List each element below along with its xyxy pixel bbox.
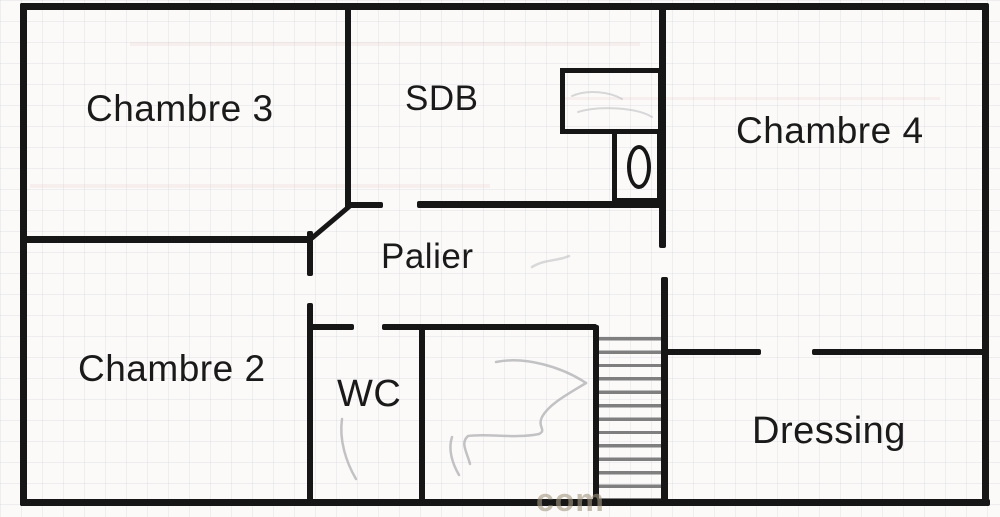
- wall-exterior-bottom: [20, 499, 990, 506]
- wall-wc-right: [419, 327, 425, 506]
- bathroom-counter: [560, 68, 663, 134]
- wall-wc-top-right: [382, 324, 597, 330]
- room-label-palier: Palier: [381, 239, 473, 274]
- room-label-sdb: SDB: [405, 81, 478, 116]
- wall-sdb-bottom-stub: [345, 202, 383, 208]
- watermark-text: com: [536, 484, 605, 516]
- wall-dressing-top-right: [812, 349, 984, 355]
- room-label-wc: WC: [337, 375, 401, 413]
- wall-exterior-right: [982, 3, 989, 506]
- wall-stair-right: [661, 277, 668, 506]
- wall-chambre3-chambre2: [20, 236, 312, 243]
- wall-stair-left: [593, 325, 599, 506]
- floor-plan: Chambre 3 SDB Chambre 4 Palier Chambre 2…: [0, 0, 1000, 517]
- room-label-chambre-4: Chambre 4: [736, 112, 924, 149]
- wall-chambre2-palier-lower: [307, 303, 313, 506]
- staircase: [599, 327, 666, 503]
- wall-exterior-left: [20, 3, 27, 506]
- wall-dressing-top-left: [666, 349, 761, 355]
- wall-sdb-chambre4: [659, 3, 666, 248]
- wall-chambre3-sdb: [345, 3, 351, 208]
- scan-artifact: [130, 42, 640, 46]
- room-label-chambre-3: Chambre 3: [86, 90, 274, 127]
- wall-chambre2-palier-upper: [307, 231, 313, 276]
- room-label-chambre-2: Chambre 2: [78, 350, 266, 387]
- toilet-icon: [627, 145, 651, 189]
- scan-artifact: [30, 184, 490, 188]
- wall-sdb-bottom: [417, 201, 664, 208]
- wall-exterior-top: [20, 3, 988, 10]
- wall-wc-top-left: [307, 324, 354, 330]
- room-label-dressing: Dressing: [752, 412, 906, 450]
